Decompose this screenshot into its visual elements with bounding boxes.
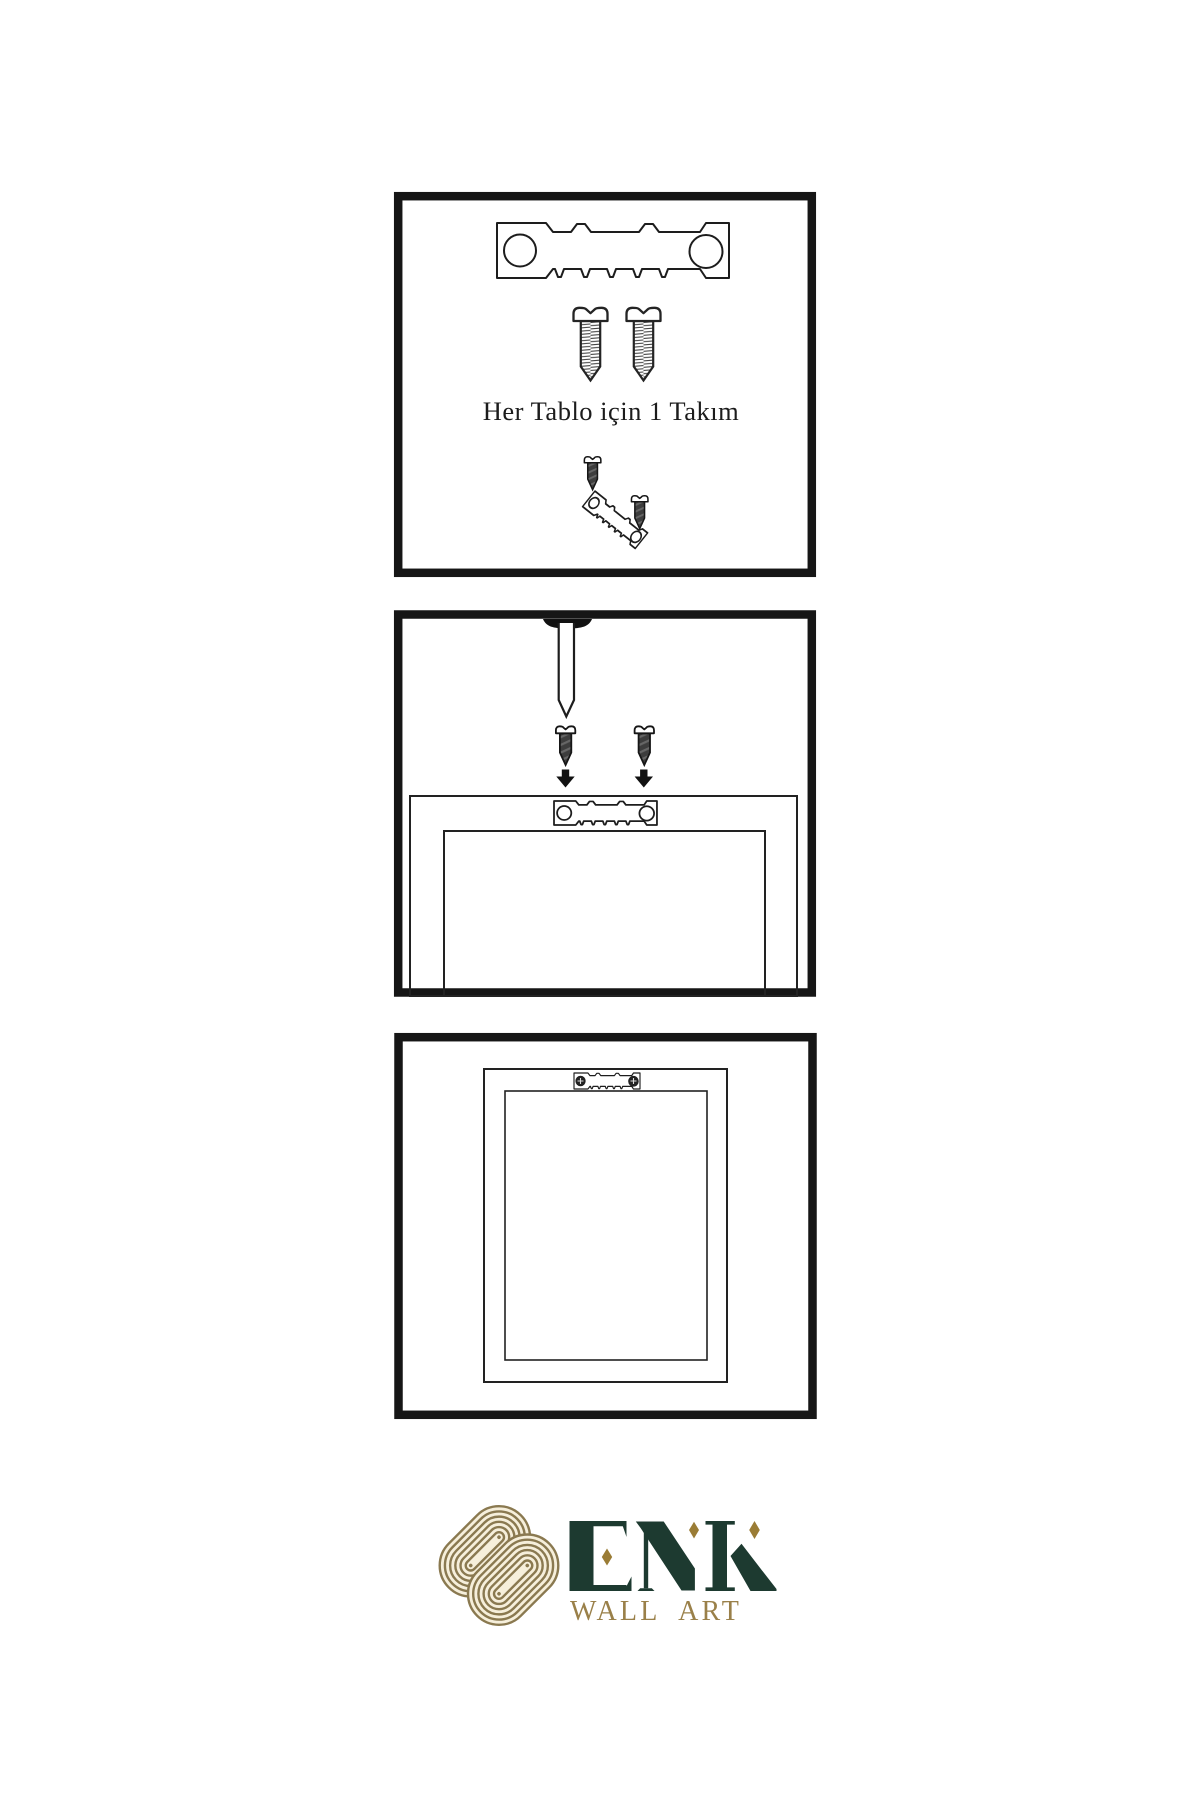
svg-text:Her Tablo için 1 Takım: Her Tablo için 1 Takım <box>483 396 740 426</box>
svg-text:WALL ART: WALL ART <box>570 1596 742 1627</box>
